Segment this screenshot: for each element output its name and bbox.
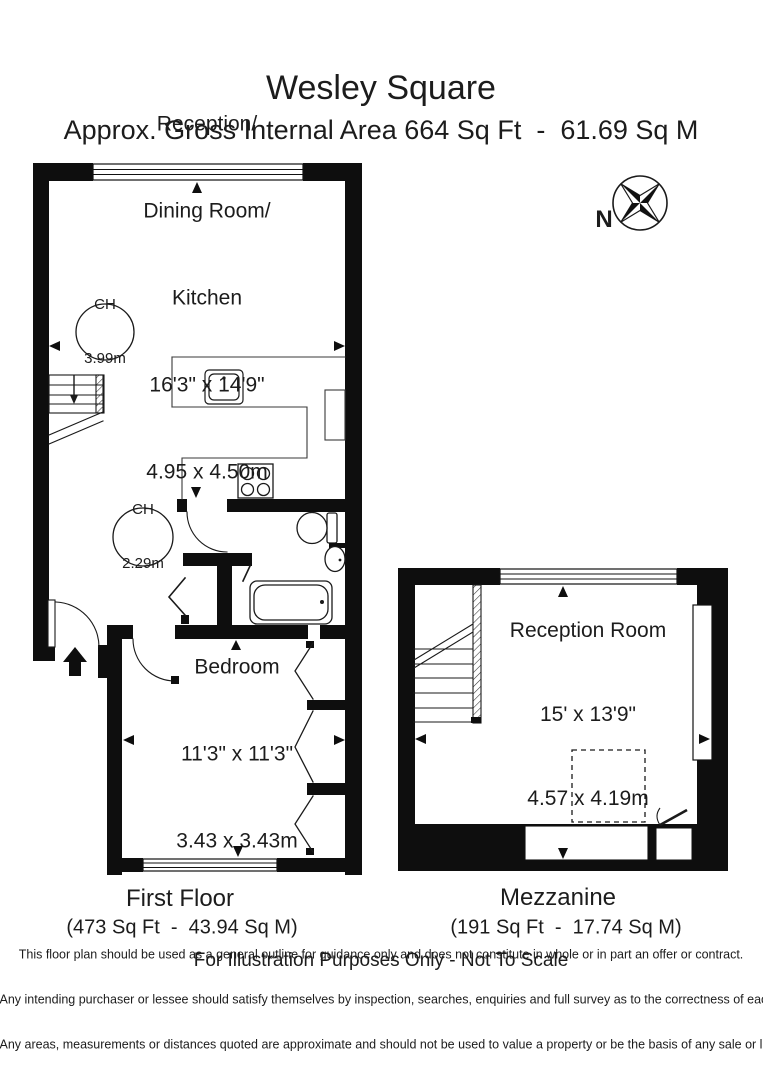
page-title: Wesley Square — [266, 67, 496, 110]
room-name: Reception Room — [510, 617, 666, 645]
entry-arrow-icon — [63, 647, 87, 676]
room-name-line: Reception/ — [143, 110, 270, 139]
disclaimer-line: Any areas, measurements or distances quo… — [0, 1038, 763, 1053]
ch-label: CH — [122, 501, 164, 519]
disclaimer: This floor plan should be used as a gene… — [0, 918, 763, 1080]
room-name: Bedroom — [176, 653, 297, 682]
room-dim-metric: 3.43 x 3.43m — [176, 827, 297, 856]
basin-icon — [325, 543, 345, 572]
mezzanine-title: Mezzanine — [500, 883, 616, 913]
ceiling-height-upper-label: CH 3.99m — [84, 260, 126, 404]
room-dim-metric: 4.57 x 4.19m — [510, 785, 666, 813]
stairs-down-arrow-icon — [70, 376, 78, 404]
room-name-line: Dining Room/ — [143, 197, 270, 226]
ch-value: 3.99m — [84, 350, 126, 368]
toilet-icon — [297, 513, 337, 544]
mezzanine-reception-label: Reception Room 15' x 13'9" 4.57 x 4.19m — [510, 561, 666, 869]
fridge-appliance — [325, 390, 345, 440]
stairs-mezzanine — [413, 585, 481, 723]
room-name-line: Kitchen — [143, 284, 270, 313]
room-dim-imperial: 11'3" x 11'3" — [176, 740, 297, 769]
disclaimer-line: This floor plan should be used as a gene… — [0, 948, 763, 963]
room-dim-imperial: 15' x 13'9" — [510, 701, 666, 729]
bedroom-door — [133, 639, 179, 684]
ch-value: 2.29m — [122, 555, 164, 573]
ch-label: CH — [84, 296, 126, 314]
disclaimer-line: Any intending purchaser or lessee should… — [0, 993, 763, 1008]
first-floor-title: First Floor — [126, 884, 234, 914]
entry-door — [48, 600, 99, 647]
compass-north-label: N — [595, 205, 612, 235]
bedroom-label: Bedroom 11'3" x 11'3" 3.43 x 3.43m — [176, 595, 297, 914]
ceiling-height-lower-label: CH 2.29m — [122, 465, 164, 609]
floorplan-page: Wesley Square Approx. Gross Internal Are… — [0, 0, 763, 1080]
compass-icon — [613, 176, 667, 230]
room-dim-imperial: 16'3" x 14'9" — [143, 371, 270, 400]
